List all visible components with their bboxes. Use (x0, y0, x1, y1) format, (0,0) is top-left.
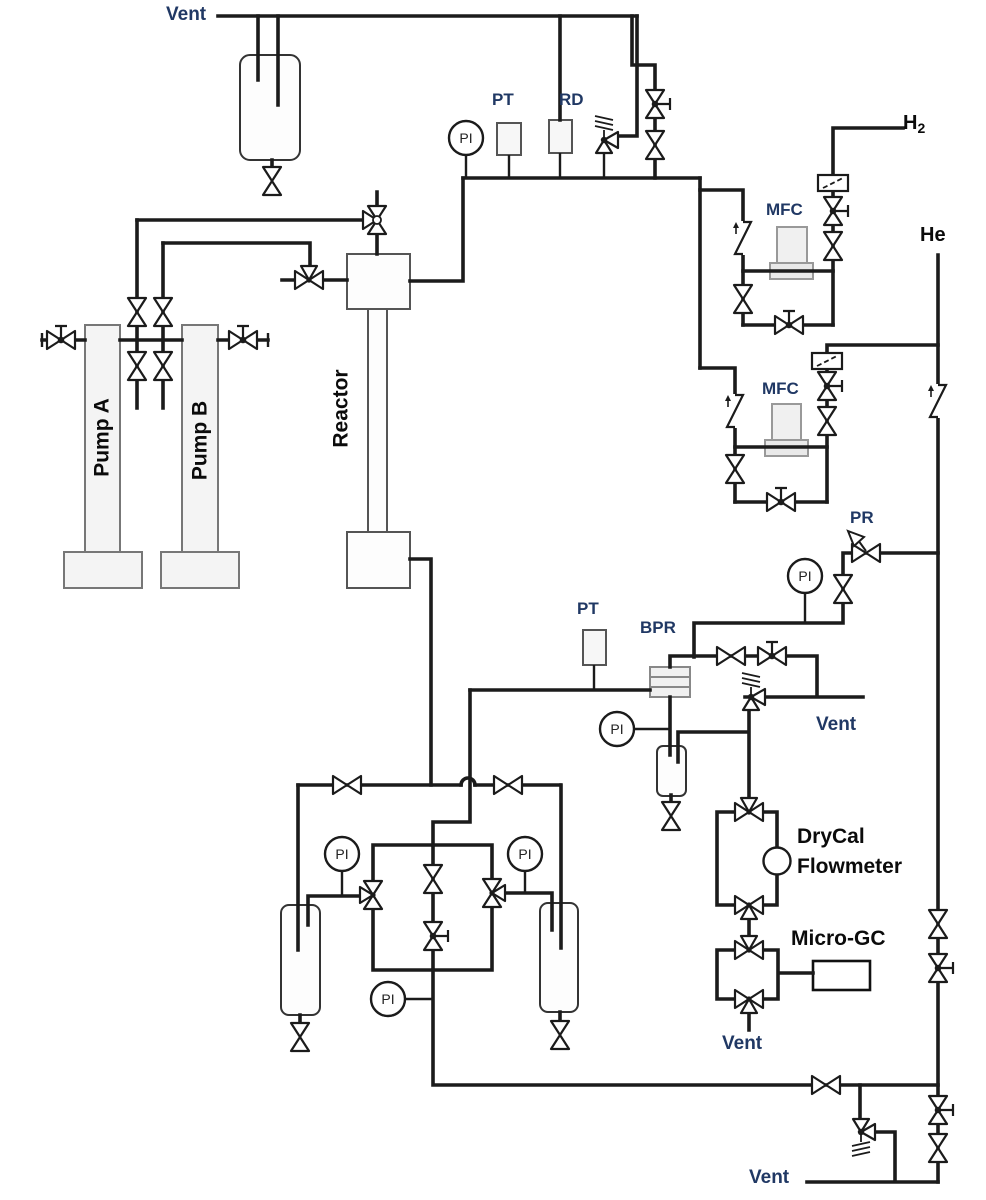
valve-icon (818, 407, 836, 435)
pid-diagram: Vent PT RD H2 He MFC MFC PR PT BPR Vent … (0, 0, 986, 1200)
mfc2-label: MFC (762, 380, 799, 397)
process-lines (42, 16, 938, 1182)
reactor-head-block (347, 254, 410, 309)
valve-icon (929, 910, 947, 938)
three-way-valve-icon (735, 936, 763, 959)
drain-valve-icon (291, 1023, 309, 1051)
valve-icon (128, 352, 146, 380)
relief-valve-icon (852, 1119, 875, 1156)
mfc1-body (777, 227, 807, 264)
ball-valve-icon (929, 954, 953, 982)
h2-label: H2 (903, 113, 925, 135)
pr-label: PR (850, 509, 874, 526)
relief-valve-icon (742, 673, 765, 710)
reactor-tube (368, 309, 387, 532)
pi-tag: PI (449, 131, 483, 145)
micro-gc-label: Micro-GC (791, 928, 886, 949)
valve-icon (424, 865, 442, 893)
pid-canvas (0, 0, 986, 1200)
three-way-valve-icon (360, 881, 382, 909)
ball-valve-icon (767, 488, 795, 511)
mfc1-label: MFC (766, 201, 803, 218)
pump-b-base (161, 552, 239, 588)
pt-label-mid: PT (577, 600, 599, 617)
ball-valve-icon (646, 90, 670, 118)
sample-vessel-right (540, 903, 578, 1012)
valve-icon (824, 232, 842, 260)
valve-icon (646, 131, 664, 159)
four-way-valve-icon (363, 206, 386, 234)
relief-valve-icon (595, 116, 618, 153)
pump-b-label: Pump B (190, 376, 211, 506)
metering-valve-icon (733, 221, 753, 255)
h2-subscript: 2 (917, 120, 925, 136)
drain-valve-icon (263, 167, 281, 195)
valve-icon (128, 298, 146, 326)
valve-icon (734, 285, 752, 313)
pi-tag: PI (371, 992, 405, 1006)
pump-a-base (64, 552, 142, 588)
drycal-label-line2: Flowmeter (797, 856, 902, 877)
valve-icon (834, 575, 852, 603)
vent-knockout-vessel (240, 55, 300, 160)
vent-label-mid: Vent (816, 715, 856, 734)
back-pressure-regulator (650, 667, 690, 697)
ball-valve-icon (424, 922, 448, 950)
ball-valve-icon (775, 311, 803, 334)
equipment-layer (64, 55, 870, 1015)
check-valve-icon (812, 353, 842, 369)
pressure-transmitter-mid (583, 630, 606, 665)
micro-gc-box (813, 961, 870, 990)
valve-icon (812, 1076, 840, 1094)
metering-valve-icon (725, 394, 745, 428)
three-way-valve-icon (735, 798, 763, 821)
reactor-label: Reactor (331, 344, 352, 474)
pi-tag: PI (508, 847, 542, 861)
valve-icon (154, 298, 172, 326)
three-way-valve-icon (735, 896, 763, 919)
rd-label: RD (559, 91, 584, 108)
valve-symbols (47, 90, 953, 1162)
pressure-transmitter-top (497, 123, 521, 155)
ball-valve-icon (818, 372, 842, 400)
ball-valve-icon (47, 326, 75, 349)
drain-valve-icon (662, 802, 680, 830)
ball-valve-icon (229, 326, 257, 349)
valve-icon (717, 647, 745, 665)
three-way-valve-icon (735, 990, 763, 1013)
valve-icon (726, 455, 744, 483)
mfc2-body (772, 404, 801, 441)
valve-icon (929, 1134, 947, 1162)
valve-icon (333, 776, 361, 794)
vent-label-bottom-right: Vent (749, 1168, 789, 1187)
metering-valve-icon (928, 384, 948, 418)
pi-tag: PI (325, 847, 359, 861)
valve-icon (154, 352, 172, 380)
vent-label-top: Vent (166, 5, 206, 24)
drain-valve-icon (551, 1021, 569, 1049)
valve-icon (494, 776, 522, 794)
sample-vessel-left (281, 905, 320, 1015)
pressure-regulator-icon (848, 531, 880, 562)
rupture-disc (549, 120, 572, 153)
three-way-valve-icon (295, 266, 323, 289)
instrument-stems (42, 152, 805, 999)
drycal-flowmeter-icon (764, 848, 791, 875)
vent-label-bottom-mid: Vent (722, 1034, 762, 1053)
drycal-label-line1: DryCal (797, 826, 865, 847)
check-valve-icon (818, 175, 848, 191)
bpr-label: BPR (640, 619, 676, 636)
ball-valve-icon (929, 1096, 953, 1124)
he-label: He (920, 225, 946, 245)
pi-tag: PI (788, 569, 822, 583)
ball-valve-icon (824, 197, 848, 225)
three-way-valve-icon (483, 879, 505, 907)
reactor-base-block (347, 532, 410, 588)
pi-tag: PI (600, 722, 634, 736)
pump-a-label: Pump A (92, 373, 113, 503)
ball-valve-icon (758, 642, 786, 665)
h2-base: H (903, 112, 917, 134)
pt-label-top: PT (492, 91, 514, 108)
